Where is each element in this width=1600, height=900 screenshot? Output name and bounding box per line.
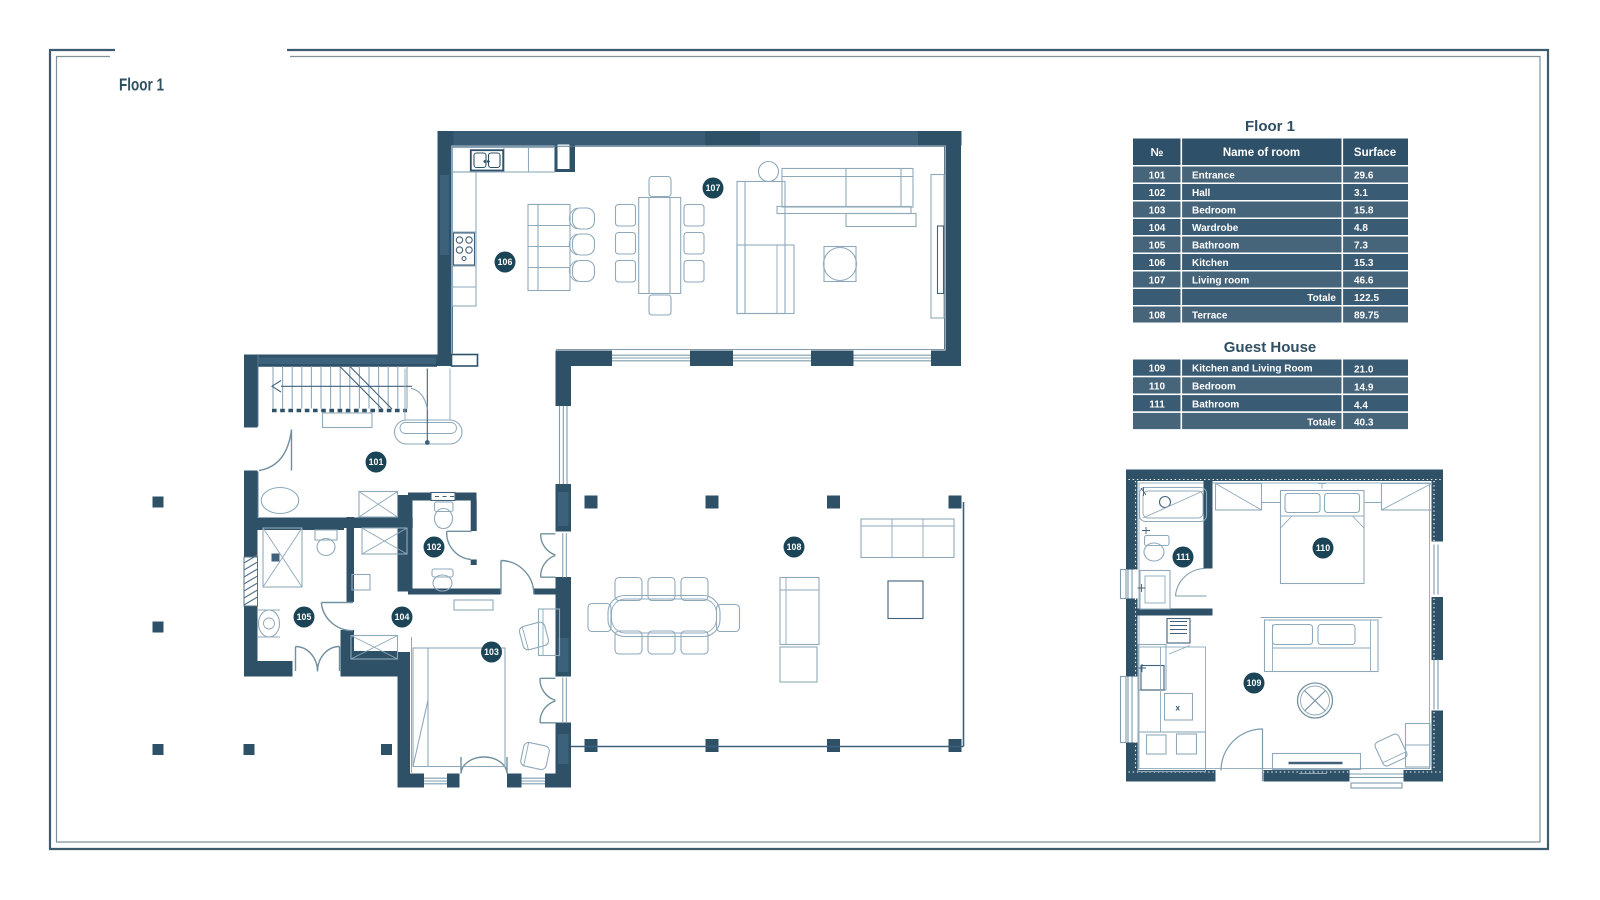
svg-text:29.6: 29.6 xyxy=(1354,171,1374,182)
svg-text:103: 103 xyxy=(484,647,499,657)
svg-text:111: 111 xyxy=(1176,552,1190,562)
svg-text:111: 111 xyxy=(1149,400,1165,411)
svg-text:106: 106 xyxy=(498,257,513,267)
svg-text:Kitchen and Living Room: Kitchen and Living Room xyxy=(1192,364,1313,375)
svg-text:Kitchen: Kitchen xyxy=(1192,258,1229,269)
svg-text:15.8: 15.8 xyxy=(1354,206,1374,217)
svg-text:21.0: 21.0 xyxy=(1354,365,1374,376)
svg-text:101: 101 xyxy=(1149,171,1166,182)
svg-text:101: 101 xyxy=(369,457,384,467)
svg-text:Bedroom: Bedroom xyxy=(1192,206,1236,217)
svg-text:109: 109 xyxy=(1149,364,1166,375)
svg-text:110: 110 xyxy=(1316,543,1330,553)
svg-text:№: № xyxy=(1151,147,1164,159)
svg-text:105: 105 xyxy=(297,612,312,622)
svg-text:Wardrobe: Wardrobe xyxy=(1192,223,1239,234)
svg-text:40.3: 40.3 xyxy=(1354,418,1374,429)
svg-text:Living room: Living room xyxy=(1192,276,1249,287)
svg-text:108: 108 xyxy=(787,542,802,552)
svg-text:108: 108 xyxy=(1149,311,1166,322)
svg-text:105: 105 xyxy=(1149,241,1166,252)
svg-text:102: 102 xyxy=(1149,188,1166,199)
svg-text:Terrace: Terrace xyxy=(1192,311,1228,322)
svg-text:Bedroom: Bedroom xyxy=(1192,382,1236,393)
svg-text:4.8: 4.8 xyxy=(1354,223,1368,234)
svg-text:7.3: 7.3 xyxy=(1354,241,1368,252)
svg-text:46.6: 46.6 xyxy=(1354,276,1374,287)
svg-text:103: 103 xyxy=(1149,206,1166,217)
svg-text:102: 102 xyxy=(427,542,442,552)
svg-text:Hall: Hall xyxy=(1192,188,1211,199)
svg-text:Guest House: Guest House xyxy=(1224,339,1317,356)
svg-text:Totale: Totale xyxy=(1307,293,1336,304)
svg-text:104: 104 xyxy=(1149,223,1166,234)
svg-text:15.3: 15.3 xyxy=(1354,258,1374,269)
svg-text:3.1: 3.1 xyxy=(1354,188,1368,199)
svg-text:107: 107 xyxy=(706,183,721,193)
svg-text:Name of room: Name of room xyxy=(1223,147,1300,159)
svg-text:Totale: Totale xyxy=(1307,418,1336,429)
svg-text:4.4: 4.4 xyxy=(1354,401,1368,412)
svg-text:122.5: 122.5 xyxy=(1354,293,1379,304)
svg-text:x: x xyxy=(1176,704,1181,713)
svg-text:110: 110 xyxy=(1149,382,1166,393)
svg-text:104: 104 xyxy=(395,612,410,622)
svg-text:107: 107 xyxy=(1149,276,1166,287)
svg-text:89.75: 89.75 xyxy=(1354,311,1379,322)
svg-text:Floor 1: Floor 1 xyxy=(1245,118,1295,135)
svg-text:14.9: 14.9 xyxy=(1354,383,1374,394)
svg-text:Floor 1: Floor 1 xyxy=(119,75,164,95)
svg-text:Bathroom: Bathroom xyxy=(1192,241,1239,252)
svg-text:109: 109 xyxy=(1247,678,1262,688)
svg-text:Surface: Surface xyxy=(1354,147,1396,159)
svg-text:Bathroom: Bathroom xyxy=(1192,400,1239,411)
svg-text:Entrance: Entrance xyxy=(1192,171,1235,182)
svg-text:106: 106 xyxy=(1149,258,1166,269)
